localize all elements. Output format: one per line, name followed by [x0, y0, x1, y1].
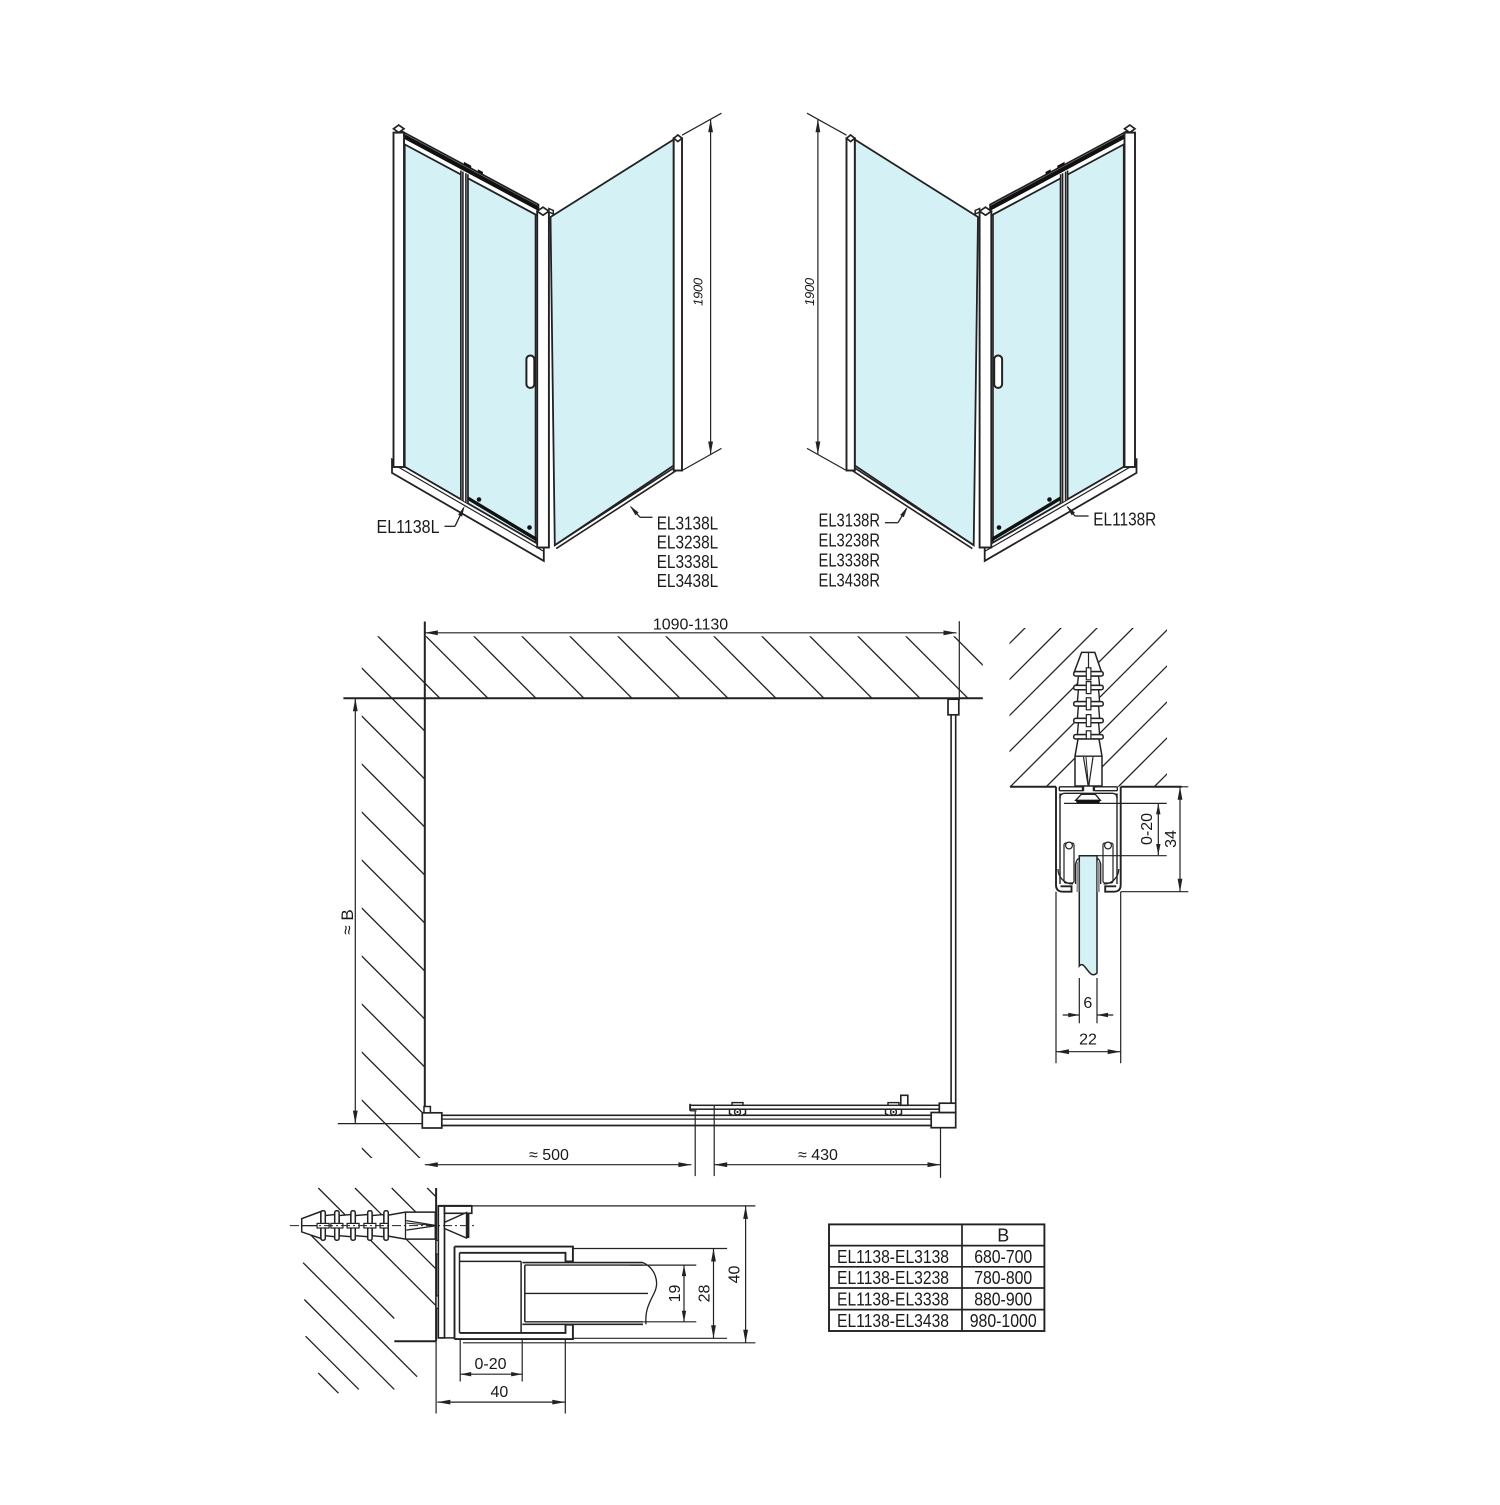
svg-text:28: 28: [697, 1285, 714, 1303]
svg-text:6: 6: [1083, 995, 1092, 1012]
svg-text:EL3338R: EL3338R: [819, 551, 881, 571]
svg-text:980-1000: 980-1000: [970, 1311, 1037, 1331]
svg-text:EL3138R: EL3138R: [819, 511, 881, 531]
svg-text:EL3438L: EL3438L: [657, 571, 719, 591]
svg-text:1900: 1900: [802, 277, 817, 306]
svg-text:19: 19: [667, 1285, 684, 1303]
svg-text:EL1138L: EL1138L: [377, 517, 440, 537]
svg-text:EL1138-EL3438: EL1138-EL3438: [837, 1311, 949, 1331]
svg-text:880-900: 880-900: [974, 1290, 1032, 1310]
svg-text:40: 40: [491, 1384, 509, 1401]
svg-text:≈ B: ≈ B: [338, 909, 357, 934]
svg-text:≈ 500: ≈ 500: [529, 1147, 569, 1164]
svg-text:EL1138-EL3338: EL1138-EL3338: [837, 1290, 949, 1310]
svg-text:EL1138R: EL1138R: [1093, 509, 1156, 529]
svg-text:B: B: [997, 1225, 1009, 1245]
svg-text:EL1138-EL3238: EL1138-EL3238: [837, 1268, 949, 1288]
svg-text:40: 40: [727, 1266, 744, 1284]
svg-text:1900: 1900: [690, 277, 705, 306]
svg-text:EL3238L: EL3238L: [657, 533, 719, 553]
svg-text:0-20: 0-20: [1139, 813, 1156, 845]
svg-text:EL3338L: EL3338L: [657, 552, 719, 572]
svg-text:EL1138-EL3138: EL1138-EL3138: [837, 1247, 949, 1267]
svg-text:680-700: 680-700: [974, 1247, 1032, 1267]
svg-text:EL3238R: EL3238R: [819, 531, 881, 551]
svg-text:1090-1130: 1090-1130: [653, 617, 728, 634]
svg-text:34: 34: [1163, 830, 1180, 848]
svg-text:0-20: 0-20: [474, 1356, 506, 1373]
svg-text:EL3138L: EL3138L: [657, 513, 719, 533]
svg-text:EL3438R: EL3438R: [819, 571, 881, 591]
svg-text:780-800: 780-800: [974, 1268, 1032, 1288]
svg-text:22: 22: [1079, 1032, 1097, 1049]
svg-text:≈ 430: ≈ 430: [798, 1147, 838, 1164]
